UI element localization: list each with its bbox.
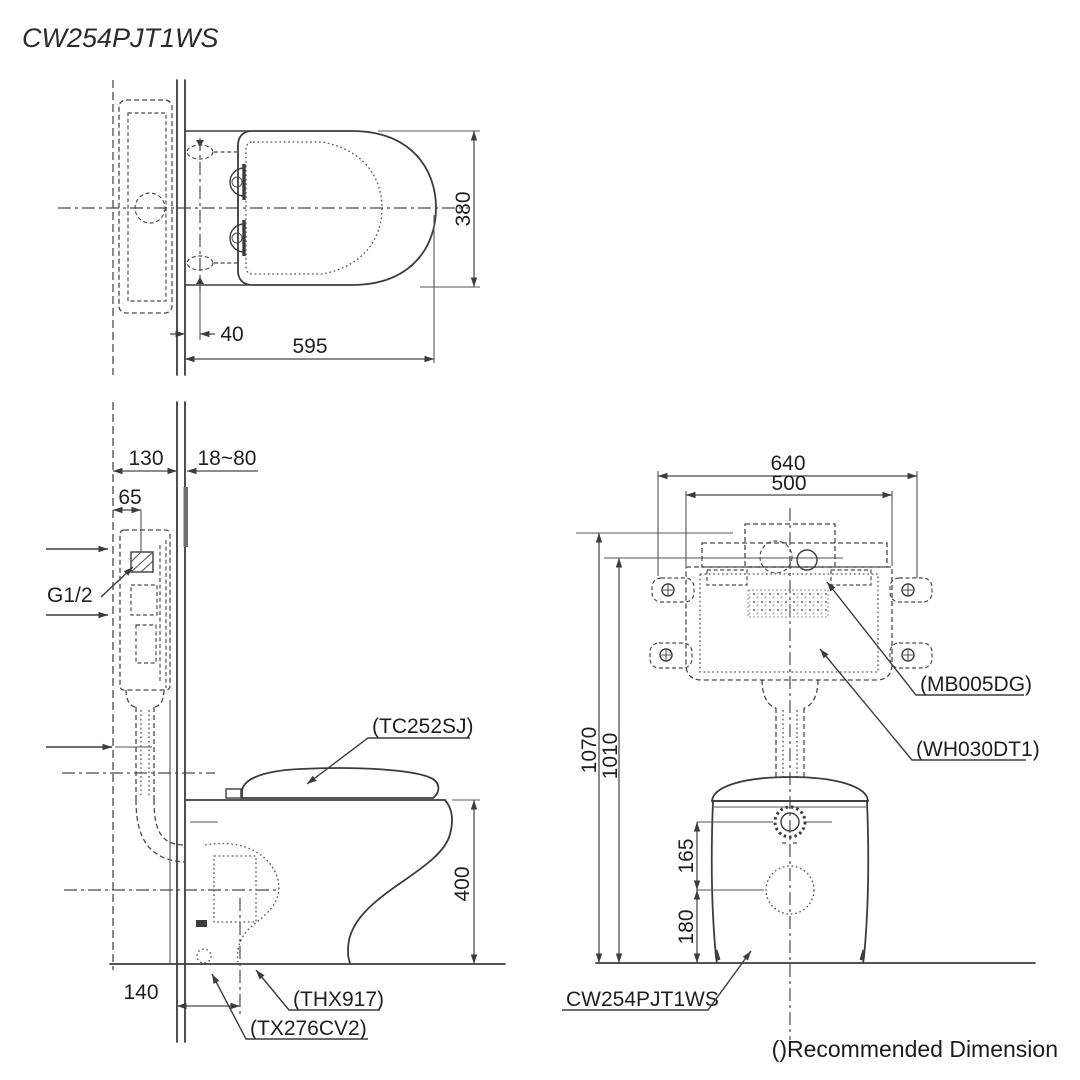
bowl-side [64,800,452,1014]
bowl-model-label: CW254PJT1WS [566,988,719,1011]
dim-inlet-spacing: 165 [675,822,832,890]
frame-model-callout: (WH030DT1) [820,649,1040,761]
stop-valve-label: (TX276CV2) [250,1017,367,1040]
tank-body-hidden [700,574,878,672]
tank-valve [131,585,157,615]
dim-hinge-setback: 40 [170,292,244,346]
flush-accessory-label: (THX917) [293,988,384,1011]
bolt-mark-bottom [196,277,204,284]
dim-outlet-height-text: 180 [675,909,698,944]
supply-connection-label: G1/2 [47,584,93,607]
tank-back-guides [160,540,166,688]
side-view: 130 18~80 65 G1/2 [46,402,505,1042]
lid-profile [242,768,438,798]
tank-model-callout: (MB005DG) [827,582,1032,696]
dim-wall-thickness: 18~80 [187,447,258,471]
inner-bracket-right [831,570,871,585]
seat-ring-hidden [246,142,382,274]
bowl-left-edge [712,801,717,963]
dim-hinge-setback-text: 40 [220,323,243,346]
dim-bowl-height-text: 400 [451,866,474,901]
trapway-hidden [205,843,279,962]
hinge-pin-top [232,177,242,187]
supply-fitting [131,552,153,572]
seat-model-callout: (TC252SJ) [307,715,474,784]
recommended-dimension-note: ()Recommended Dimension [772,1036,1058,1062]
dim-tank-width: 500 [686,472,892,566]
supply-flow-arrows [46,549,112,747]
dim-frame-height-text: 1070 [578,727,601,774]
dim-tank-width-text: 500 [771,472,806,495]
dim-supply-offset: 65 [113,486,142,552]
hinge-pin-bottom [232,233,242,243]
dim-frame-width: 640 [658,452,917,578]
dim-outlet-setback-text: 140 [123,981,158,1004]
concealed-tank-front [650,524,932,780]
bowl-right-edge [863,801,868,963]
seat-mounting-plan [185,131,250,292]
flush-button-large [760,541,792,573]
dim-frame-depth: 130 [113,447,177,471]
front-view: 640 500 1070 1010 [562,452,1040,1040]
hinge-block [226,789,241,798]
dim-frame-depth-text: 130 [128,447,163,470]
tank-neck [126,690,164,707]
dim-actuator-height-text: 1010 [599,733,622,780]
dim-actuator-height: 1010 [599,558,843,963]
tank-inner-outline [128,113,166,301]
tank-outline [119,100,172,313]
dim-bowl-height: 400 [451,800,480,964]
inner-bracket-left [707,570,747,585]
outlet-seal [196,920,207,927]
bolt-mark-top [196,140,204,147]
seat-model-label: (TC252SJ) [372,715,474,738]
frame-model-label: (WH030DT1) [916,738,1040,761]
dim-wall-thickness-text: 18~80 [198,447,257,470]
concealed-tank-plan [119,100,172,313]
bowl-model-callout: CW254PJT1WS [562,951,751,1011]
tank-model-label: (MB005DG) [920,673,1032,696]
dim-seat-width-text: 380 [452,191,475,226]
technical-drawing-sheet: CW254PJT1WS [0,0,1080,1080]
dim-outlet-height: 180 [675,890,698,963]
tank-float [136,625,156,663]
flush-accessory-callout: (THX917) [256,970,384,1011]
flush-pipe [136,707,154,800]
toilet-installation-drawing: CW254PJT1WS [0,0,1080,1080]
label-plate [748,590,828,617]
dim-seat-width: 380 [378,131,480,287]
flush-pipe-inner [141,710,149,798]
dim-inlet-spacing-text: 165 [675,838,698,873]
bowl-profile [348,800,452,963]
trap-box-hidden [214,856,256,922]
drain-hidden [197,949,211,963]
dim-supply-offset-text: 65 [118,486,141,509]
actuator-wings [702,543,887,567]
seat-lid-side [226,768,438,798]
dim-seat-length-text: 595 [292,335,327,358]
top-view: 380 40 595 [58,80,480,375]
tank-outline [120,530,170,690]
wall-panel-strip [184,487,189,547]
drawing-title: CW254PJT1WS [22,23,219,53]
frame-outline [686,567,892,680]
